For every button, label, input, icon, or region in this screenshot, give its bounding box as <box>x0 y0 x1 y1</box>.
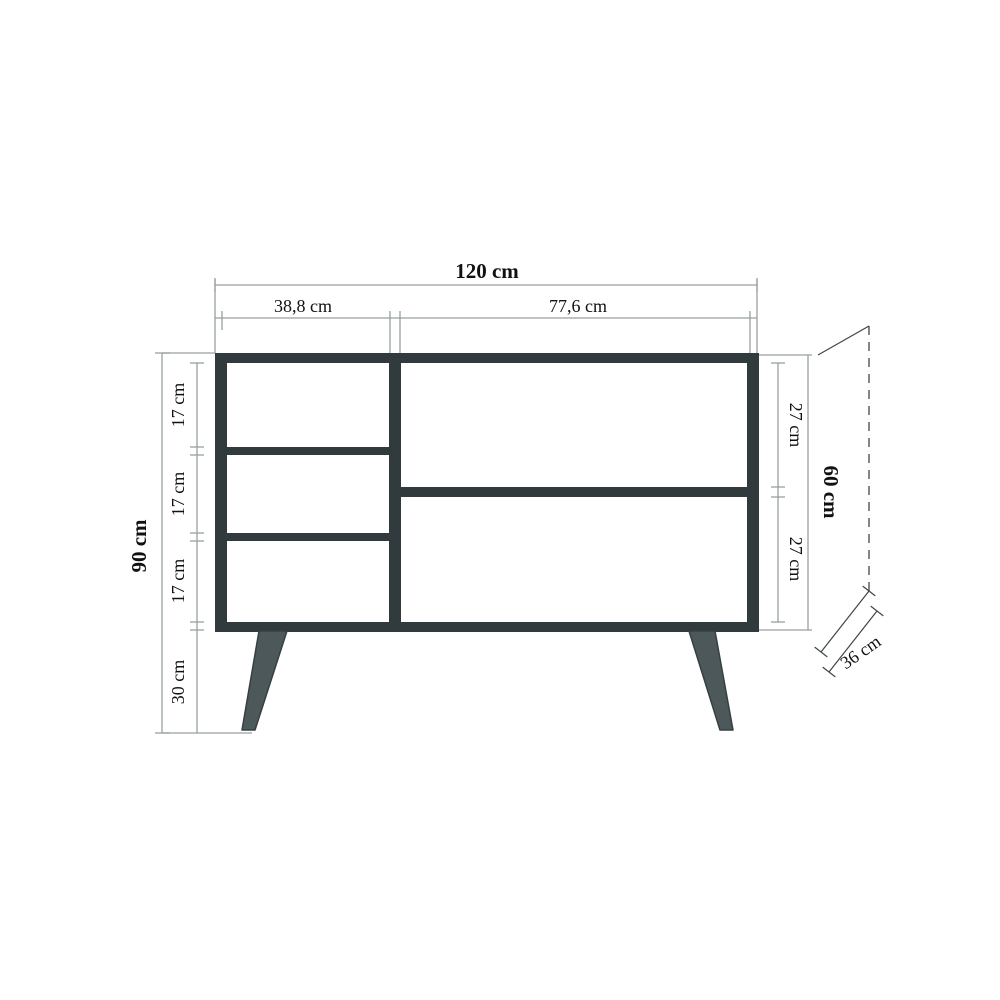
label-compartment-top: 27 cm <box>786 403 806 448</box>
left-shelf-2 <box>227 533 389 541</box>
label-right-section-width: 77,6 cm <box>549 296 607 316</box>
left-dimensions: 90 cm 17 cm 17 cm 17 cm 30 cm <box>127 353 252 733</box>
right-leg <box>689 631 733 730</box>
tick <box>871 606 884 616</box>
bottom-panel <box>215 622 759 632</box>
label-depth: 36 cm <box>837 631 885 673</box>
label-total-height: 90 cm <box>127 519 151 573</box>
label-left-section-width: 38,8 cm <box>274 296 332 316</box>
center-divider <box>389 363 401 622</box>
left-shelf-1 <box>227 447 389 455</box>
left-side-panel <box>215 353 227 632</box>
right-side-panel <box>747 353 759 632</box>
right-shelf <box>401 487 747 497</box>
furniture-dimension-diagram: 120 cm 38,8 cm 77,6 cm 90 cm 17 cm 17 cm… <box>0 0 1000 1000</box>
label-compartment-bottom: 27 cm <box>786 537 806 582</box>
label-body-height: 60 cm <box>819 465 843 519</box>
projection-edge-top <box>818 326 869 355</box>
label-shelf-3-height: 17 cm <box>168 559 188 604</box>
label-total-width: 120 cm <box>455 259 519 283</box>
tick <box>823 667 836 677</box>
tick <box>815 647 828 657</box>
cabinet-body <box>215 353 759 730</box>
diagram-svg: 120 cm 38,8 cm 77,6 cm 90 cm 17 cm 17 cm… <box>0 0 1000 1000</box>
right-dimensions: 27 cm 27 cm 60 cm <box>759 355 843 630</box>
label-leg-height: 30 cm <box>168 660 188 705</box>
top-panel <box>215 353 759 363</box>
label-shelf-2-height: 17 cm <box>168 472 188 517</box>
label-shelf-1-height: 17 cm <box>168 383 188 428</box>
top-dimensions: 120 cm 38,8 cm 77,6 cm <box>215 259 757 353</box>
left-leg <box>242 631 287 730</box>
